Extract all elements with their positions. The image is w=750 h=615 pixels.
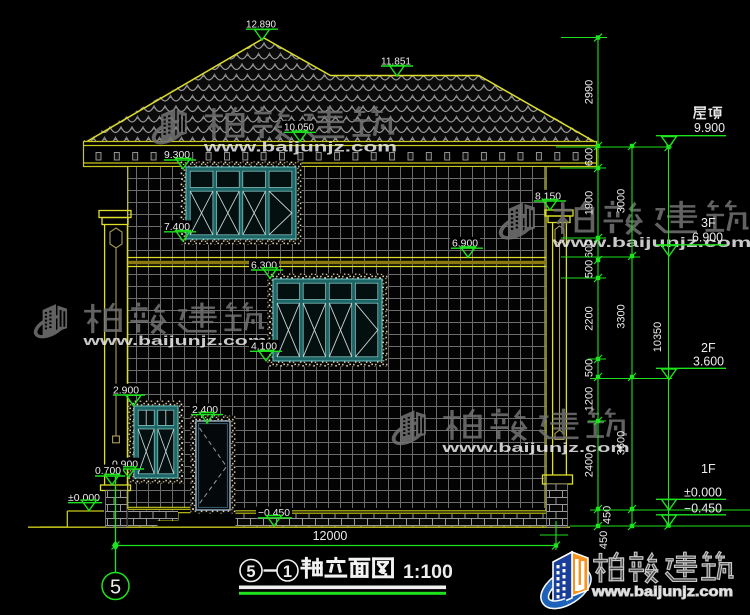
svg-text:www.baijunjz.com: www.baijunjz.com bbox=[591, 583, 733, 599]
svg-text:12000: 12000 bbox=[313, 529, 348, 543]
svg-text:1: 1 bbox=[283, 563, 292, 581]
svg-text:www.baijunjz.com: www.baijunjz.com bbox=[441, 440, 630, 455]
svg-text:www.baijunjz.com: www.baijunjz.com bbox=[82, 333, 267, 348]
svg-text:3000: 3000 bbox=[616, 189, 628, 213]
svg-text:600: 600 bbox=[584, 240, 596, 258]
svg-text:9.900: 9.900 bbox=[694, 121, 725, 135]
svg-text:1:100: 1:100 bbox=[403, 561, 453, 583]
svg-text:2990: 2990 bbox=[584, 80, 596, 104]
svg-text:450: 450 bbox=[598, 531, 610, 549]
svg-text:3300: 3300 bbox=[616, 304, 628, 328]
svg-text:2F: 2F bbox=[701, 341, 716, 355]
svg-text:3F: 3F bbox=[701, 216, 716, 230]
svg-text:600: 600 bbox=[584, 148, 596, 166]
svg-text:2200: 2200 bbox=[584, 306, 596, 330]
svg-text:−0.450: −0.450 bbox=[684, 502, 722, 516]
svg-text:10350: 10350 bbox=[652, 322, 664, 353]
svg-text:2400: 2400 bbox=[584, 453, 596, 477]
svg-text:1F: 1F bbox=[701, 462, 716, 476]
svg-text:500: 500 bbox=[584, 260, 596, 278]
svg-text:1900: 1900 bbox=[584, 191, 596, 215]
svg-text:1200: 1200 bbox=[584, 387, 596, 411]
svg-text:5: 5 bbox=[246, 563, 255, 581]
svg-text:500: 500 bbox=[584, 359, 596, 377]
svg-text:6.900: 6.900 bbox=[692, 231, 723, 245]
svg-text:3.600: 3.600 bbox=[693, 355, 724, 369]
svg-text:5: 5 bbox=[110, 577, 121, 599]
svg-text:450: 450 bbox=[602, 506, 614, 524]
svg-text:3600: 3600 bbox=[616, 431, 628, 455]
svg-text:±0.000: ±0.000 bbox=[684, 486, 722, 500]
